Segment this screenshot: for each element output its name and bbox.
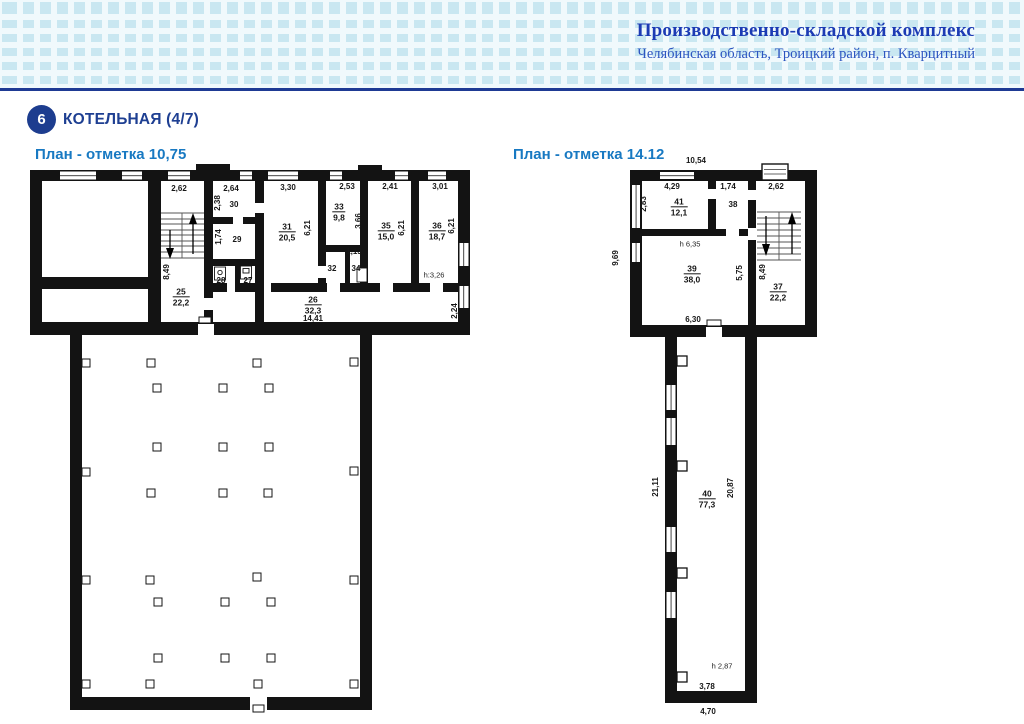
section-number-badge: 6 xyxy=(27,105,56,134)
header-subtitle: Челябинская область, Троицкий район, п. … xyxy=(637,46,975,63)
banner-divider xyxy=(0,88,1024,91)
header-title: Производственно-складской комплекс xyxy=(637,20,975,42)
header-text-block: Производственно-складской комплекс Челяб… xyxy=(637,20,975,63)
right-plan-stairs xyxy=(757,212,801,260)
section-number: 6 xyxy=(37,111,45,128)
top-banner: Производственно-складской комплекс Челяб… xyxy=(0,0,1024,88)
floor-plan-right-drawing xyxy=(600,150,1024,724)
section-title: КОТЕЛЬНАЯ (4/7) xyxy=(63,111,199,129)
left-plan-walls xyxy=(30,164,470,710)
left-plan-windows-doors xyxy=(60,172,469,713)
floor-plan-left-drawing xyxy=(0,150,500,724)
right-plan-walls xyxy=(630,170,817,703)
scanned-listing-page: Производственно-складской комплекс Челяб… xyxy=(0,0,1024,724)
